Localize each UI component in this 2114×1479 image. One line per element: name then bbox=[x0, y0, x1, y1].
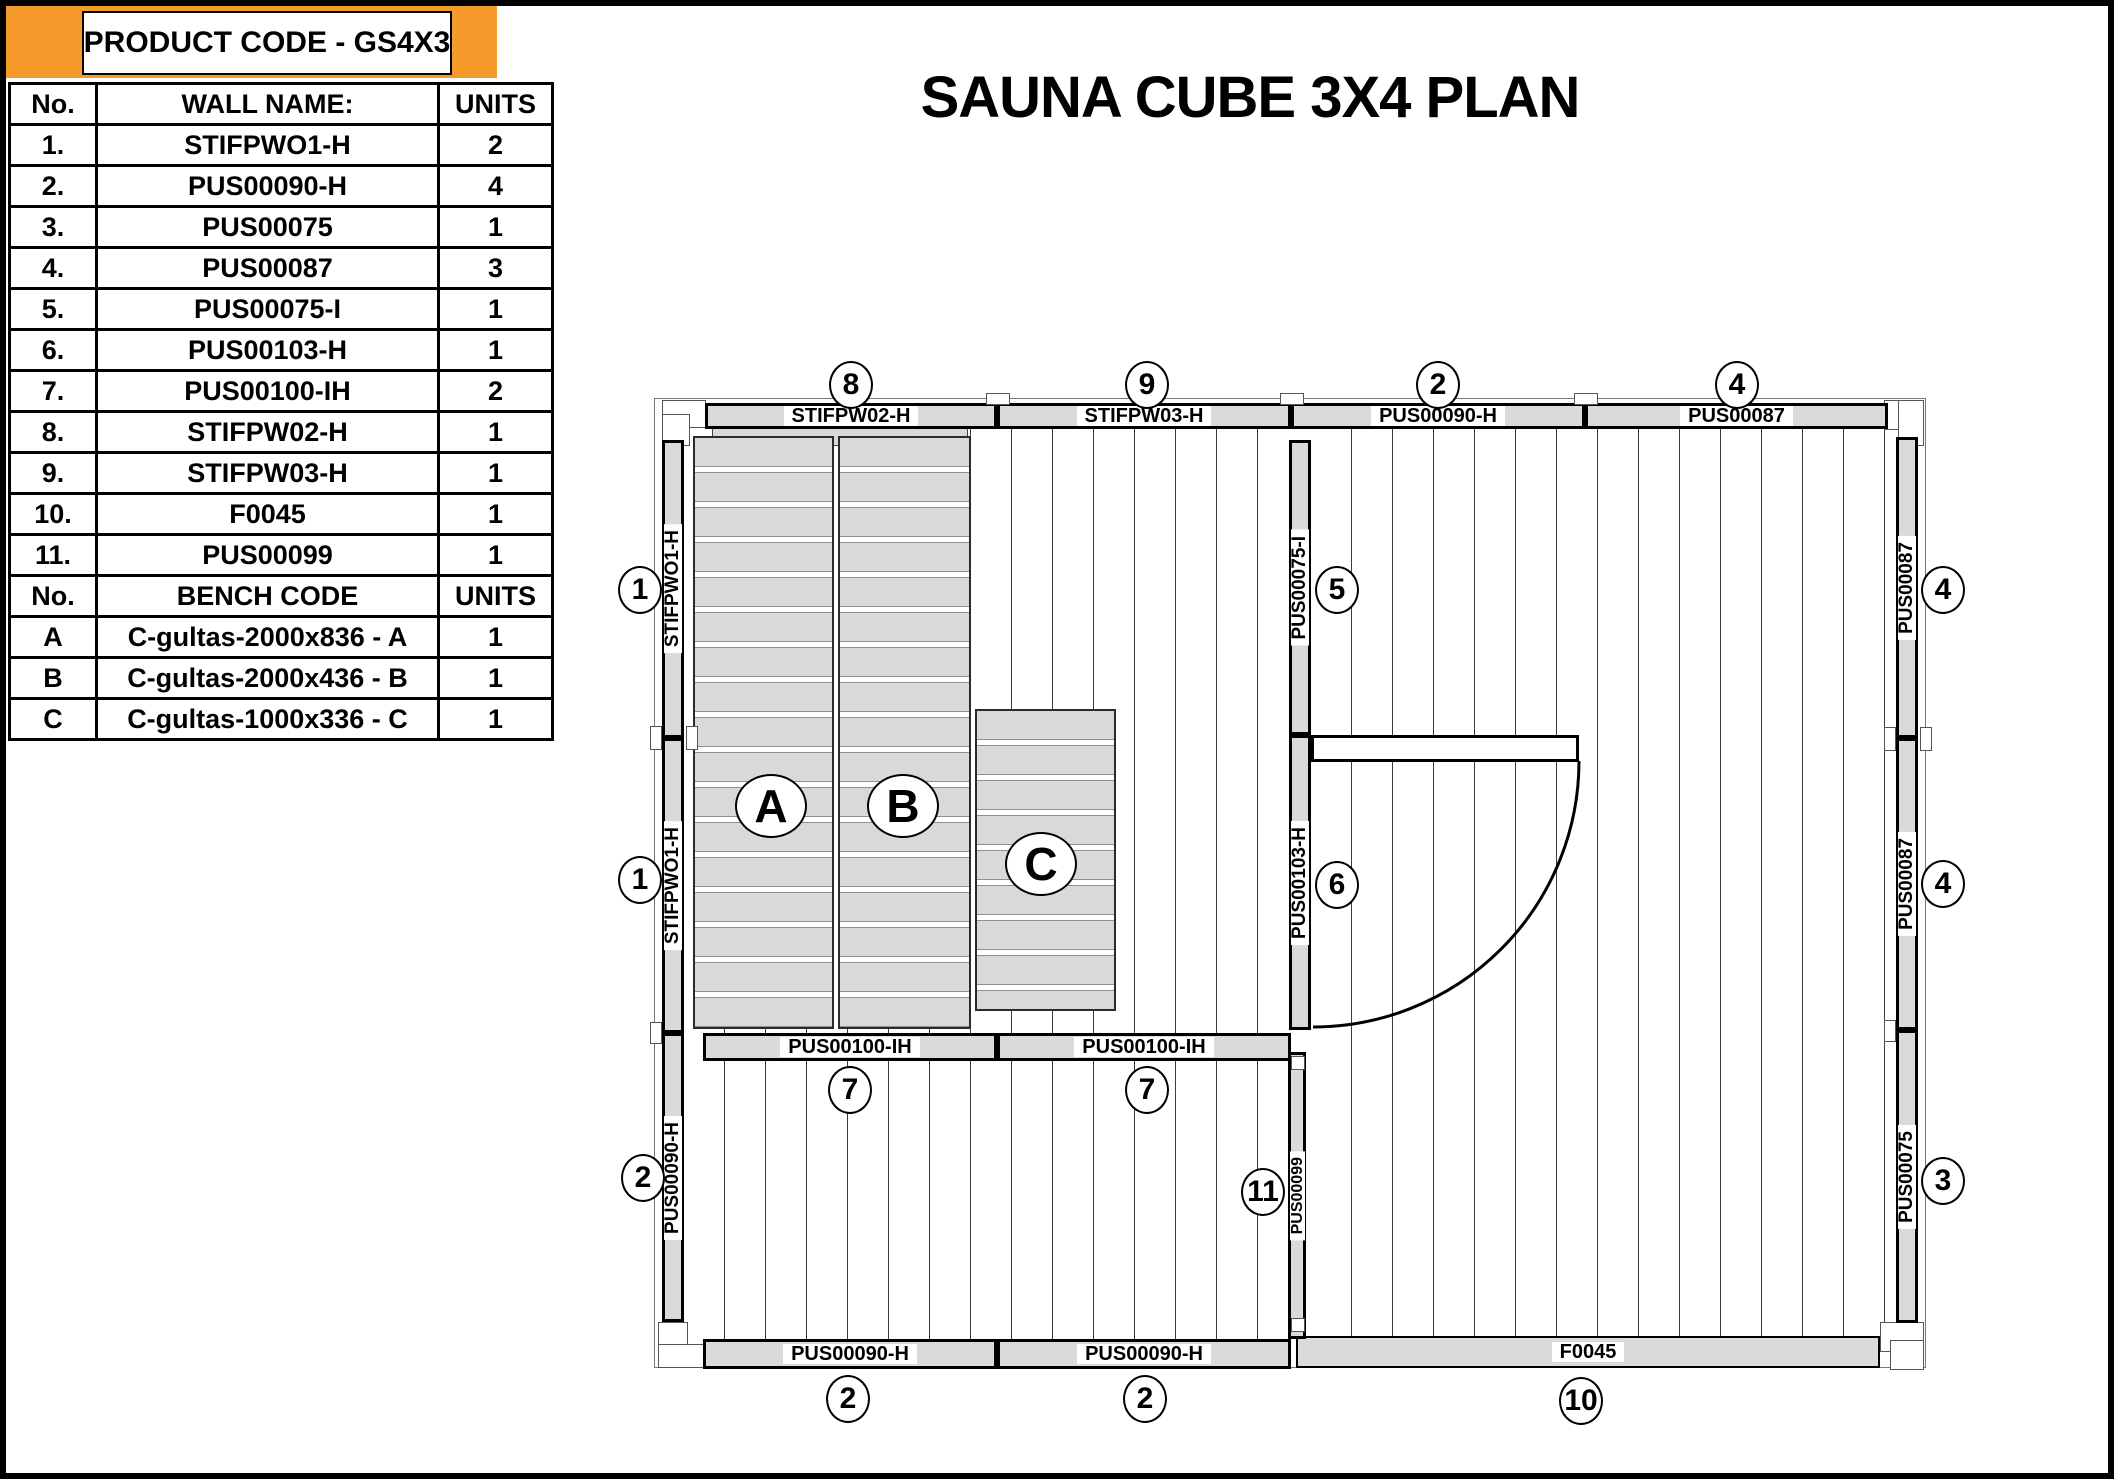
row-name: STIFPW02-H bbox=[97, 412, 439, 453]
drawing-sheet: PRODUCT CODE - GS4X3 No. WALL NAME: UNIT… bbox=[0, 0, 2114, 1479]
wall-segment-pus00090-h-left: PUS00090-H bbox=[662, 1033, 684, 1322]
row-no: 2. bbox=[10, 166, 97, 207]
row-no: 8. bbox=[10, 412, 97, 453]
wall-row: 1.STIFPWO1-H2 bbox=[10, 125, 553, 166]
wall-row: 5.PUS00075-I1 bbox=[10, 289, 553, 330]
row-no: 1. bbox=[10, 125, 97, 166]
door-leaf bbox=[1311, 735, 1579, 762]
row-units: 1 bbox=[439, 658, 553, 699]
row-units: 1 bbox=[439, 699, 553, 740]
row-units: 2 bbox=[439, 371, 553, 412]
bench-rows: AC-gultas-2000x836 - A1BC-gultas-2000x43… bbox=[10, 617, 553, 740]
wall-label: PUS00099 bbox=[1290, 1151, 1305, 1240]
circle-badge: 2 bbox=[621, 1154, 665, 1202]
row-name: STIFPW03-H bbox=[97, 453, 439, 494]
row-units: 1 bbox=[439, 330, 553, 371]
circle-badge: 3 bbox=[1921, 1157, 1965, 1205]
bench-row: AC-gultas-2000x836 - A1 bbox=[10, 617, 553, 658]
lower-room-floor bbox=[684, 1061, 1291, 1339]
wall-segment-pus00075-i: PUS00075-I bbox=[1289, 440, 1311, 735]
product-code-text: PRODUCT CODE - GS4X3 bbox=[82, 11, 452, 75]
circle-badge: 1 bbox=[618, 856, 662, 904]
wall-label: PUS00075 bbox=[1898, 1125, 1916, 1229]
wall-label: STIFPWO1-H bbox=[664, 821, 682, 950]
wall-segment-pus00075-right: PUS00075 bbox=[1896, 1030, 1918, 1323]
circle-badge: 4 bbox=[1921, 566, 1965, 614]
wall-segment-pus00100-ih-1: PUS00100-IH bbox=[703, 1033, 997, 1061]
row-name: PUS00087 bbox=[97, 248, 439, 289]
circle-badge: 7 bbox=[1125, 1066, 1169, 1114]
circle-badge: 6 bbox=[1315, 861, 1359, 909]
wall-header-no: No. bbox=[10, 84, 97, 125]
junction-tab bbox=[1574, 393, 1598, 405]
row-name: F0045 bbox=[97, 494, 439, 535]
junction-tab bbox=[986, 393, 1010, 405]
circle-badge: 1 bbox=[618, 566, 662, 614]
bench-header-no: No. bbox=[10, 576, 97, 617]
wall-segment-stifpwo1-h-upper: STIFPWO1-H bbox=[662, 440, 684, 738]
row-name: STIFPWO1-H bbox=[97, 125, 439, 166]
wall-row: 6.PUS00103-H1 bbox=[10, 330, 553, 371]
junction-tab bbox=[650, 726, 662, 750]
row-no: 5. bbox=[10, 289, 97, 330]
row-no: C bbox=[10, 699, 97, 740]
circle-badge: 10 bbox=[1559, 1377, 1603, 1425]
bench-badge-a: A bbox=[735, 774, 807, 838]
wall-label: PUS00087 bbox=[1680, 406, 1793, 426]
row-name: PUS00075-I bbox=[97, 289, 439, 330]
row-units: 4 bbox=[439, 166, 553, 207]
row-no: 9. bbox=[10, 453, 97, 494]
row-no: 6. bbox=[10, 330, 97, 371]
wall-row: 3.PUS000751 bbox=[10, 207, 553, 248]
row-no: 11. bbox=[10, 535, 97, 576]
circle-badge: 4 bbox=[1715, 361, 1759, 409]
row-units: 1 bbox=[439, 535, 553, 576]
page-title: SAUNA CUBE 3X4 PLAN bbox=[890, 64, 1610, 131]
junction-tab bbox=[1920, 727, 1932, 751]
circle-badge: 8 bbox=[829, 361, 873, 409]
wall-label: STIFPW03-H bbox=[1077, 406, 1212, 426]
main-room-floor bbox=[1311, 428, 1896, 1339]
wall-label: PUS00090-H bbox=[1077, 1344, 1211, 1364]
wall-segment-pus00099: PUS00099 bbox=[1288, 1052, 1306, 1339]
wall-segment-pus00087-right-1: PUS00087 bbox=[1896, 437, 1918, 738]
wall-segment-pus00087-right-2: PUS00087 bbox=[1896, 738, 1918, 1030]
circle-badge: 5 bbox=[1315, 566, 1359, 614]
circle-badge: 2 bbox=[1416, 361, 1460, 409]
circle-badge: 2 bbox=[1123, 1375, 1167, 1423]
row-no: 7. bbox=[10, 371, 97, 412]
wall-row: 10.F00451 bbox=[10, 494, 553, 535]
row-units: 1 bbox=[439, 412, 553, 453]
row-name: PUS00100-IH bbox=[97, 371, 439, 412]
wall-row: 11.PUS000991 bbox=[10, 535, 553, 576]
wall-label: PUS00103-H bbox=[1291, 821, 1309, 945]
wall-label: F0045 bbox=[1552, 1342, 1625, 1362]
row-no: 10. bbox=[10, 494, 97, 535]
wall-label: PUS00075-I bbox=[1291, 530, 1309, 646]
wall-segment-stifpwo1-h-lower: STIFPWO1-H bbox=[662, 738, 684, 1033]
row-units: 1 bbox=[439, 617, 553, 658]
junction-tab bbox=[650, 1022, 662, 1044]
row-units: 1 bbox=[439, 207, 553, 248]
wall-label: PUS00090-H bbox=[783, 1344, 917, 1364]
row-name: C-gultas-1000x336 - C bbox=[97, 699, 439, 740]
bench-row: BC-gultas-2000x436 - B1 bbox=[10, 658, 553, 699]
wall-header-row: No. WALL NAME: UNITS bbox=[10, 84, 553, 125]
bench-header-name: BENCH CODE bbox=[97, 576, 439, 617]
row-name: PUS00075 bbox=[97, 207, 439, 248]
wall-row: 4.PUS000873 bbox=[10, 248, 553, 289]
wall-segment-pus00090-h-bottom-1: PUS00090-H bbox=[703, 1339, 997, 1369]
row-units: 2 bbox=[439, 125, 553, 166]
wall-label: PUS00087 bbox=[1898, 536, 1916, 640]
junction-tab bbox=[1884, 727, 1896, 751]
bench-row: CC-gultas-1000x336 - C1 bbox=[10, 699, 553, 740]
wall-segment-f0045: F0045 bbox=[1296, 1336, 1880, 1368]
bench-header-units: UNITS bbox=[439, 576, 553, 617]
circle-badge: 9 bbox=[1125, 361, 1169, 409]
wall-segment-pus00090-h-bottom-2: PUS00090-H bbox=[997, 1339, 1291, 1369]
bench-badge-c: C bbox=[1005, 832, 1077, 896]
wall-label: PUS00087 bbox=[1898, 832, 1916, 936]
circle-badge: 7 bbox=[828, 1066, 872, 1114]
row-no: A bbox=[10, 617, 97, 658]
row-no: B bbox=[10, 658, 97, 699]
corner-detail bbox=[1890, 1340, 1924, 1370]
wall-label: PUS00100-IH bbox=[1074, 1037, 1213, 1057]
wall-header-units: UNITS bbox=[439, 84, 553, 125]
bench-b bbox=[838, 436, 971, 1029]
parts-table: No. WALL NAME: UNITS 1.STIFPWO1-H22.PUS0… bbox=[8, 82, 554, 741]
row-no: 3. bbox=[10, 207, 97, 248]
bench-a bbox=[693, 436, 834, 1029]
row-name: C-gultas-2000x836 - A bbox=[97, 617, 439, 658]
junction-tab bbox=[686, 726, 698, 750]
wall-label: STIFPW02-H bbox=[784, 406, 919, 426]
corner-detail bbox=[658, 1344, 706, 1368]
row-no: 4. bbox=[10, 248, 97, 289]
circle-badge: 11 bbox=[1241, 1168, 1285, 1216]
row-units: 1 bbox=[439, 453, 553, 494]
wall-row: 7.PUS00100-IH2 bbox=[10, 371, 553, 412]
wall-label: PUS00090-H bbox=[664, 1116, 682, 1240]
wall-row: 8.STIFPW02-H1 bbox=[10, 412, 553, 453]
wall-label: STIFPWO1-H bbox=[664, 524, 682, 653]
product-code-banner: PRODUCT CODE - GS4X3 bbox=[6, 6, 497, 78]
wall-end-cap bbox=[1291, 1318, 1305, 1332]
row-name: PUS00090-H bbox=[97, 166, 439, 207]
circle-badge: 2 bbox=[826, 1375, 870, 1423]
bench-header-row: No. BENCH CODE UNITS bbox=[10, 576, 553, 617]
row-name: PUS00103-H bbox=[97, 330, 439, 371]
wall-label: PUS00090-H bbox=[1371, 406, 1505, 426]
bench-badge-b: B bbox=[867, 774, 939, 838]
wall-label: PUS00100-IH bbox=[780, 1037, 919, 1057]
wall-segment-pus00100-ih-2: PUS00100-IH bbox=[997, 1033, 1291, 1061]
wall-row: 9.STIFPW03-H1 bbox=[10, 453, 553, 494]
circle-badge: 4 bbox=[1921, 860, 1965, 908]
junction-tab bbox=[1884, 1020, 1896, 1042]
row-units: 1 bbox=[439, 494, 553, 535]
row-units: 1 bbox=[439, 289, 553, 330]
junction-tab bbox=[1280, 393, 1304, 405]
row-units: 3 bbox=[439, 248, 553, 289]
wall-segment-pus00103-h: PUS00103-H bbox=[1289, 735, 1311, 1030]
wall-header-name: WALL NAME: bbox=[97, 84, 439, 125]
row-name: PUS00099 bbox=[97, 535, 439, 576]
wall-rows: 1.STIFPWO1-H22.PUS00090-H43.PUS0007514.P… bbox=[10, 125, 553, 576]
wall-row: 2.PUS00090-H4 bbox=[10, 166, 553, 207]
wall-end-cap bbox=[1291, 1056, 1305, 1070]
row-name: C-gultas-2000x436 - B bbox=[97, 658, 439, 699]
